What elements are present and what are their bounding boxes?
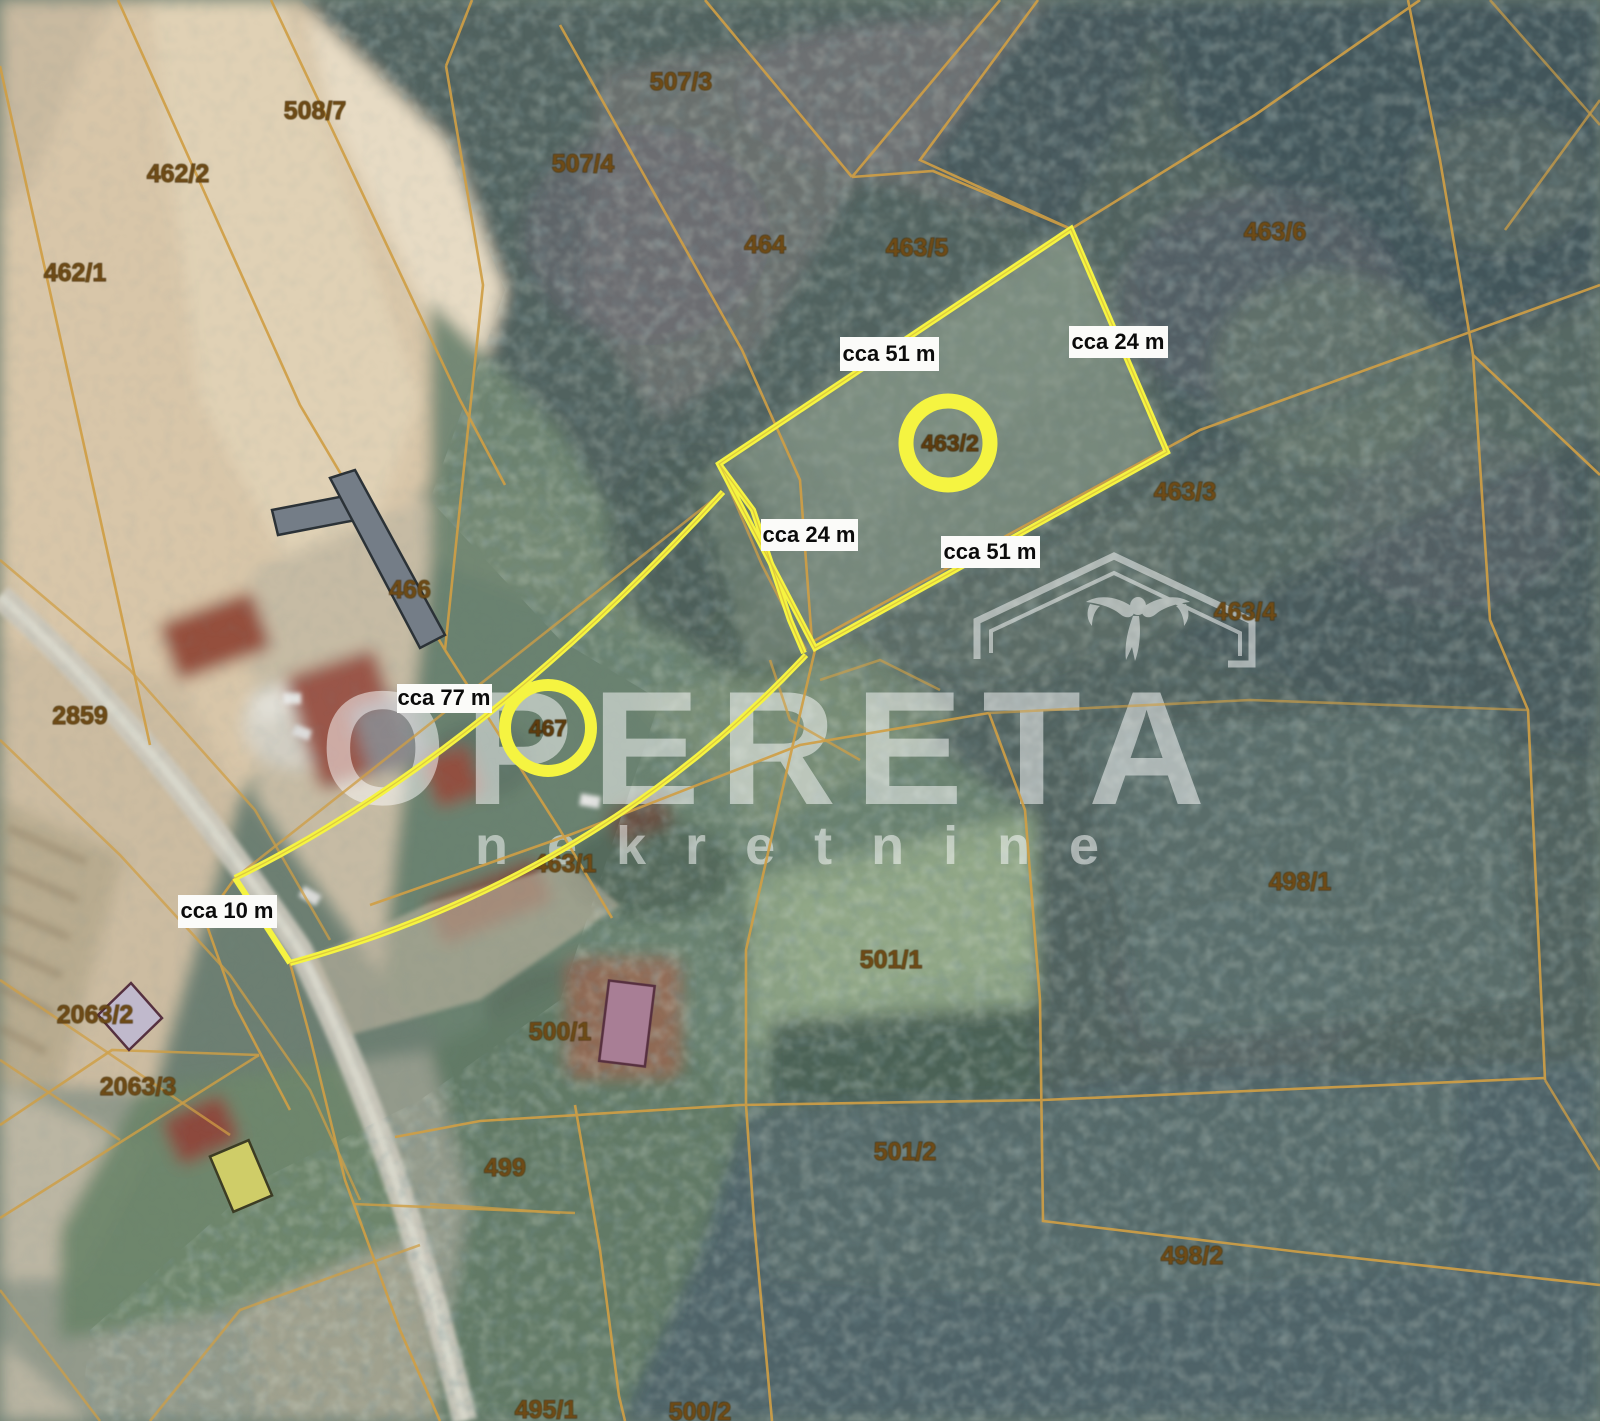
- svg-text:466: 466: [389, 576, 431, 604]
- svg-text:499: 499: [484, 1154, 526, 1182]
- svg-text:500/1: 500/1: [529, 1018, 592, 1046]
- svg-text:463/2: 463/2: [921, 430, 979, 456]
- svg-text:cca 51 m: cca 51 m: [843, 341, 936, 366]
- svg-text:507/4: 507/4: [552, 150, 615, 178]
- svg-text:cca 10 m: cca 10 m: [181, 898, 274, 923]
- svg-text:498/1: 498/1: [1269, 868, 1332, 896]
- svg-text:cca 51 m: cca 51 m: [944, 539, 1037, 564]
- svg-text:cca 24 m: cca 24 m: [763, 522, 856, 547]
- svg-text:463/3: 463/3: [1154, 478, 1217, 506]
- svg-text:2063/3: 2063/3: [100, 1073, 176, 1101]
- svg-text:501/1: 501/1: [860, 946, 923, 974]
- svg-text:463/5: 463/5: [886, 234, 949, 262]
- svg-text:467: 467: [529, 715, 567, 741]
- svg-text:463/6: 463/6: [1244, 218, 1307, 246]
- svg-text:463/4: 463/4: [1214, 598, 1277, 626]
- svg-text:cca 24 m: cca 24 m: [1072, 329, 1165, 354]
- svg-text:462/2: 462/2: [147, 160, 210, 188]
- svg-text:2063/2: 2063/2: [57, 1001, 133, 1029]
- svg-text:508/7: 508/7: [284, 97, 347, 125]
- svg-text:2859: 2859: [52, 702, 108, 730]
- svg-text:464: 464: [744, 231, 786, 259]
- svg-text:cca 77 m: cca 77 m: [398, 685, 491, 710]
- svg-text:498/2: 498/2: [1161, 1242, 1224, 1270]
- svg-text:495/1: 495/1: [515, 1396, 578, 1421]
- svg-text:500/2: 500/2: [669, 1398, 732, 1421]
- svg-text:462/1: 462/1: [44, 259, 107, 287]
- svg-text:501/2: 501/2: [874, 1138, 937, 1166]
- svg-text:507/3: 507/3: [650, 68, 713, 96]
